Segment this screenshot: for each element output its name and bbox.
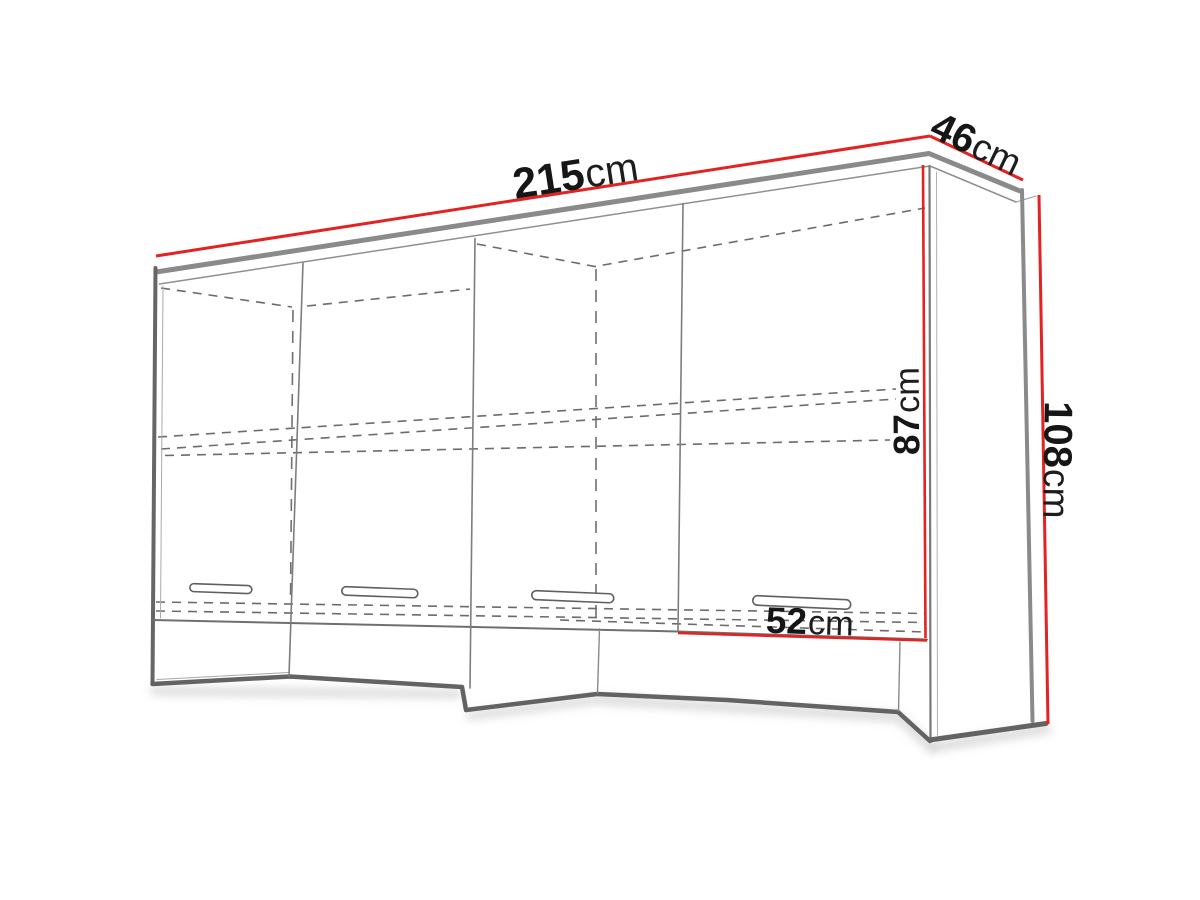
dimension-label-front-height: 87 cm <box>886 367 928 455</box>
dimension-value-height: 108 <box>1035 401 1080 468</box>
door-handles <box>190 584 851 610</box>
cabinet-dimension-drawing: 215 cm 46 cm 108 cm 87 cm 52 cm <box>0 0 1200 900</box>
dimension-label-height: 108 cm <box>1034 401 1080 519</box>
door-handle-1 <box>190 584 252 594</box>
shelf-back-edge-upper <box>158 389 896 437</box>
hidden-edges <box>156 208 925 632</box>
dimension-value-door-width: 52 <box>765 600 807 642</box>
door-handle-2 <box>342 587 418 598</box>
dimension-value-width: 215 <box>510 150 588 208</box>
interior-back-top-edge-right <box>477 208 925 267</box>
dimension-value-front-height: 87 <box>886 414 927 456</box>
door-divider-2 <box>470 239 475 689</box>
dimension-label-door-width: 52 cm <box>765 600 854 644</box>
interior-back-top-edge-mid <box>307 289 470 306</box>
side-panel-front-line <box>937 172 938 735</box>
side-panel-top-step <box>1016 196 1036 202</box>
dimension-unit-front-height: cm <box>889 367 927 413</box>
diagram-canvas: 215 cm 46 cm 108 cm 87 cm 52 cm <box>0 0 1200 900</box>
left-side-edge <box>153 268 156 684</box>
front-right-corner-edge <box>930 166 931 738</box>
drop-shadows <box>154 691 1047 748</box>
dimension-labels: 215 cm 46 cm 108 cm 87 cm 52 cm <box>510 104 1080 644</box>
plinth-divider-mid <box>598 629 600 693</box>
side-panel-back-edge <box>1022 190 1033 721</box>
shadow-left-plinth <box>154 691 458 694</box>
shadow-right-plinth <box>602 700 932 748</box>
left-side-inner-line <box>161 286 164 618</box>
shelf-front-edge <box>165 440 890 456</box>
dimension-unit-height: cm <box>1035 469 1078 519</box>
dimension-unit-width: cm <box>582 145 641 197</box>
shelf-back-edge-lower <box>161 399 896 449</box>
plinth-divider-right <box>899 642 901 711</box>
door-divider-1 <box>289 263 303 676</box>
dimension-unit-door-width: cm <box>807 604 854 643</box>
interior-back-top-edge-left <box>161 288 292 307</box>
door-handle-3 <box>532 591 614 603</box>
door-divider-3 <box>678 204 683 632</box>
